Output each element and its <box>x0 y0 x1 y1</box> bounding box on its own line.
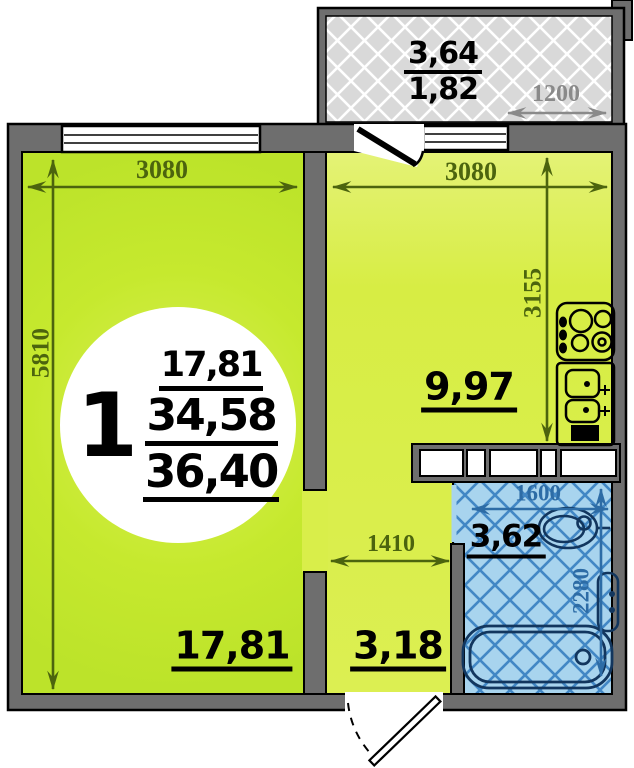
dim-living-width-label: 3080 <box>136 157 188 183</box>
floor-plan: 1 17,81 34,58 36,40 3,64 1,82 1200 3080 … <box>0 0 634 768</box>
dim-hall-width-label: 1410 <box>367 532 415 556</box>
living-room-area-label: 17,81 <box>171 627 292 672</box>
dim-kitchen-width-label: 3080 <box>445 159 497 185</box>
bathroom-wall <box>451 544 464 694</box>
dim-bathroom-height-label: 2280 <box>570 568 593 614</box>
dim-balcony-width-label: 1200 <box>532 82 580 106</box>
balcony-area-reduced: 1,82 <box>408 74 478 105</box>
dim-kitchen-height-label: 3155 <box>521 268 546 318</box>
bathroom-area-label: 3,62 <box>467 522 546 559</box>
kitchen-window <box>423 126 508 150</box>
vent-shaft-wall <box>412 444 620 482</box>
unit-overall-area: 36,40 <box>143 449 279 502</box>
dim-living-height-label: 5810 <box>29 328 54 378</box>
unit-area-stack: 17,81 34,58 36,40 <box>143 348 279 502</box>
balcony-area-label: 3,64 1,82 <box>404 39 482 105</box>
unit-total-area: 34,58 <box>145 394 278 446</box>
unit-living-area: 17,81 <box>159 348 264 391</box>
entrance-door-icon <box>345 692 443 765</box>
unit-number: 1 <box>77 374 135 477</box>
living-room-window <box>62 126 260 152</box>
balcony-area-full: 3,64 <box>404 39 482 74</box>
living-partition-wall-lower <box>304 572 326 694</box>
kitchen-area-label: 9,97 <box>421 368 517 413</box>
hallway-area-label: 3,18 <box>350 627 446 672</box>
living-partition-wall-upper <box>304 152 326 490</box>
unit-area-badge: 1 17,81 34,58 36,40 <box>60 307 296 543</box>
living-hall-doorway <box>302 490 328 572</box>
dim-bathroom-width-label: 1600 <box>515 482 561 505</box>
